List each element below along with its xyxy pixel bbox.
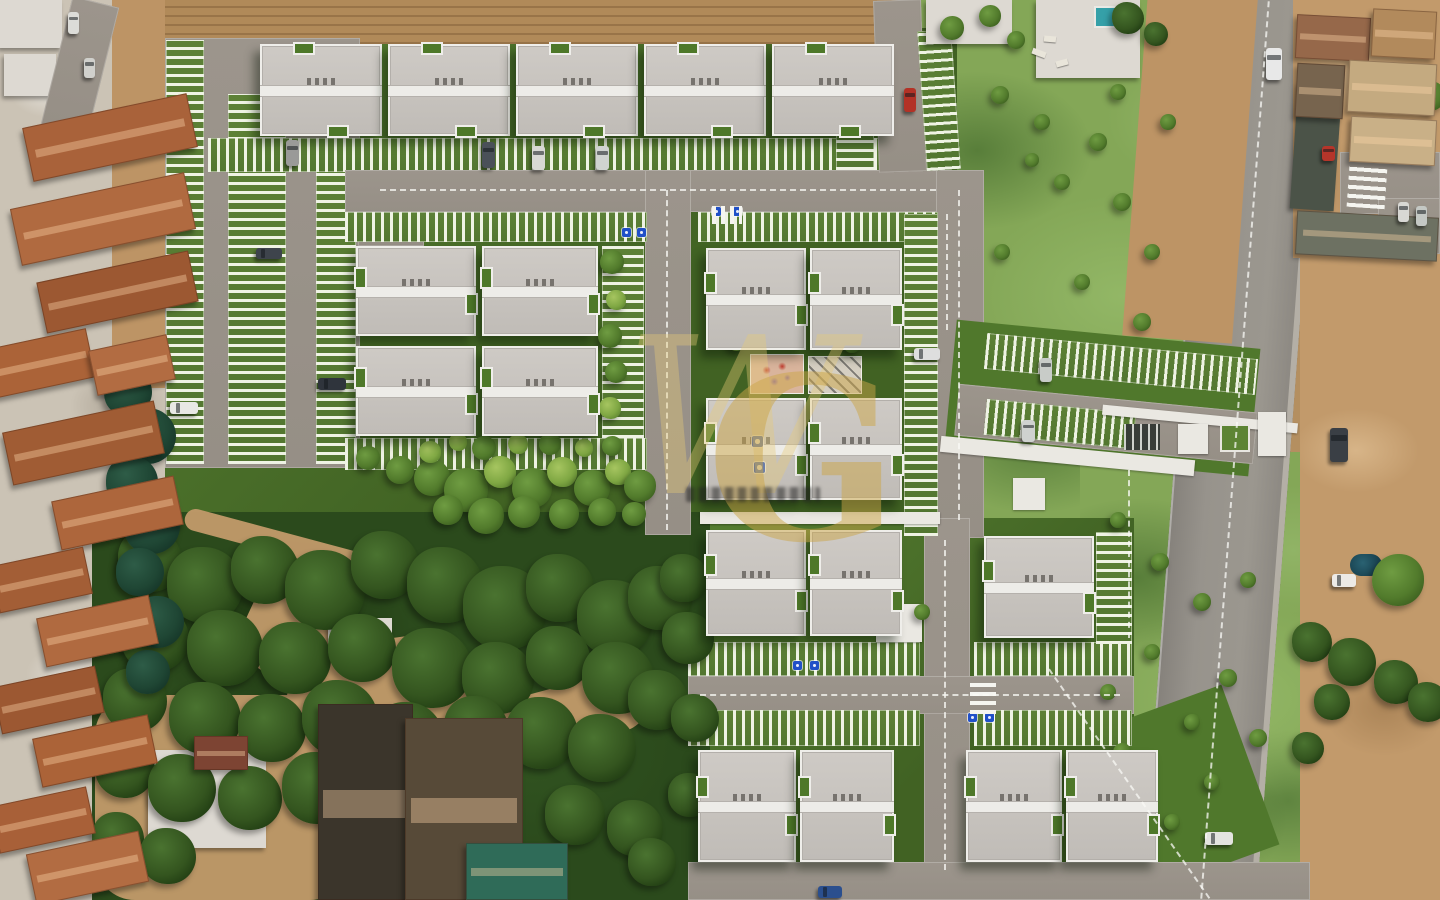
tree (1328, 638, 1376, 686)
apartment-building (706, 530, 806, 636)
tree (1184, 714, 1200, 730)
roof-ridge (411, 798, 518, 823)
striph-area (974, 642, 1132, 676)
tree (1240, 572, 1256, 588)
boundary-dash-line (700, 694, 1120, 696)
building-notch (587, 293, 600, 315)
building-notch (795, 454, 808, 476)
building-notch (293, 42, 315, 55)
roof-vents (742, 287, 770, 294)
roof-ridge (197, 751, 245, 755)
roof-vents (691, 78, 719, 85)
tree (484, 456, 516, 488)
crosswalk (970, 678, 996, 714)
building-notch (711, 125, 733, 138)
car (1330, 428, 1348, 462)
tree (1151, 553, 1169, 571)
building-notch (982, 560, 995, 582)
roof-vents (435, 78, 463, 85)
boundary-dash-line (380, 189, 936, 191)
tree (1204, 774, 1220, 790)
striph-area (208, 138, 906, 172)
tree (539, 433, 561, 455)
stripv-area (904, 214, 938, 536)
tree (1100, 684, 1116, 700)
boundary-dash-line (958, 190, 960, 520)
car (286, 140, 299, 166)
car-windshield (1417, 210, 1426, 213)
parking-sign-marking (752, 436, 763, 447)
roof-vents (842, 571, 870, 578)
parking-sign-marking (810, 661, 819, 670)
building-notch (795, 590, 808, 612)
roof-ridge (0, 351, 87, 376)
apartment-building (706, 398, 806, 500)
tree (545, 785, 605, 845)
car-windshield (261, 249, 265, 258)
apartment-building (966, 750, 1062, 862)
tree (1292, 732, 1324, 764)
car (1398, 202, 1409, 222)
striph-area (974, 710, 1132, 746)
tree (628, 838, 676, 886)
car (1332, 574, 1356, 587)
building-notch (465, 393, 478, 415)
building-notch (808, 422, 821, 444)
play-area (750, 354, 804, 394)
path-area (1178, 424, 1208, 454)
tree (1110, 84, 1126, 100)
fit-area (808, 356, 862, 394)
building-notch (480, 267, 493, 289)
boundary-dash-line (946, 214, 948, 330)
apartment-building (698, 750, 796, 862)
tree (547, 457, 577, 487)
tree (599, 397, 621, 419)
roof-vents (563, 78, 591, 85)
parking-sign-marking (754, 462, 765, 473)
tree (979, 5, 1001, 27)
car (256, 248, 282, 259)
tree (419, 441, 441, 463)
car-windshield (823, 887, 827, 897)
parking-sign-marking (637, 228, 646, 237)
building-notch (549, 42, 571, 55)
stripv-area (1096, 532, 1132, 644)
tree (660, 554, 708, 602)
terracotta-roof (1347, 60, 1438, 117)
tree (508, 434, 528, 454)
car (818, 886, 842, 898)
building-notch (696, 776, 709, 798)
crosswalk (1347, 165, 1388, 210)
roof-ridge (1300, 34, 1366, 43)
roof-ridge (2, 687, 96, 713)
tree (1219, 669, 1237, 687)
roof-vents (833, 794, 861, 801)
tree (1292, 622, 1332, 662)
roof-vents (526, 279, 554, 286)
tree (472, 436, 496, 460)
tree (218, 766, 282, 830)
striph-area (688, 710, 920, 746)
tree (1054, 174, 1070, 190)
car-windshield (1041, 363, 1051, 367)
pvd-area (1124, 424, 1160, 450)
car (1205, 832, 1233, 845)
tree (328, 614, 396, 682)
tree (1144, 22, 1168, 46)
building-notch (891, 454, 904, 476)
building-notch (1064, 776, 1077, 798)
roof-vents (402, 379, 430, 386)
terracotta-roof (1295, 63, 1346, 119)
tree (598, 324, 622, 348)
apartment-building (800, 750, 894, 862)
building-notch (421, 42, 443, 55)
tree (508, 496, 540, 528)
apartment-building (482, 346, 598, 436)
building-notch (839, 125, 861, 138)
boundary-dash-line (944, 540, 946, 870)
building-notch (808, 272, 821, 294)
tree (468, 498, 504, 534)
tree (994, 244, 1010, 260)
car-windshield (919, 349, 923, 359)
tree (622, 502, 646, 526)
building-notch (808, 554, 821, 576)
roof-vents (307, 78, 335, 85)
car-windshield (69, 17, 78, 21)
tree (606, 290, 626, 310)
striph-area (688, 642, 920, 676)
tree (1144, 644, 1160, 660)
tree (433, 495, 463, 525)
building-notch (587, 393, 600, 415)
roof-vents (1025, 575, 1053, 582)
apartment-building (356, 346, 476, 436)
car-windshield (1211, 833, 1215, 844)
car (532, 146, 545, 170)
car-windshield (597, 151, 608, 155)
crosswalk (712, 206, 742, 224)
tree (1110, 512, 1126, 528)
car (1040, 358, 1052, 382)
tree (1144, 244, 1160, 260)
car (68, 12, 79, 34)
tree (1025, 153, 1039, 167)
tree (1133, 313, 1151, 331)
tree (392, 628, 472, 708)
car-windshield (1399, 206, 1408, 209)
car-windshield (1337, 575, 1341, 586)
roof-ridge (96, 355, 167, 376)
aerial-site-plan: W G (0, 0, 1440, 900)
roof-ridge (1354, 136, 1431, 146)
building-notch (354, 267, 367, 289)
car-windshield (287, 146, 298, 150)
striph-area (345, 212, 647, 242)
building-notch (891, 304, 904, 326)
building-notch (883, 814, 896, 836)
tree (568, 714, 636, 782)
tree (1164, 814, 1180, 830)
roof-vents (842, 287, 870, 294)
tree (1193, 593, 1211, 611)
apartment-building (356, 246, 476, 336)
tree (1249, 729, 1267, 747)
tree (1074, 274, 1090, 290)
roof-vents (402, 279, 430, 286)
terracotta-roof (1371, 8, 1437, 59)
tree (940, 16, 964, 40)
apartment-building (516, 44, 638, 136)
tree (602, 436, 622, 456)
car (1022, 420, 1035, 442)
roof-ridge (35, 119, 186, 158)
tree (671, 694, 719, 742)
building-notch (704, 554, 717, 576)
building-notch (465, 293, 478, 315)
roof-ridge (323, 790, 409, 817)
apartment-building (772, 44, 894, 136)
tree (140, 828, 196, 884)
tree (914, 604, 930, 620)
path-area (700, 512, 940, 524)
building-notch (798, 776, 811, 798)
tree (526, 626, 590, 690)
building-notch (891, 590, 904, 612)
building-notch (1083, 592, 1096, 614)
roof-ridge (46, 617, 149, 645)
apartment-building (388, 44, 510, 136)
road-area (688, 862, 1310, 900)
tree (238, 694, 306, 762)
building-notch (455, 125, 477, 138)
apartment-building (810, 248, 902, 350)
building-notch (677, 42, 699, 55)
roof-ridge (1299, 87, 1342, 96)
roof-ridge (1303, 230, 1432, 243)
tree (116, 548, 164, 596)
apartment-building (984, 536, 1094, 638)
building-notch (354, 367, 367, 389)
parking-sign-marking (622, 228, 631, 237)
car (84, 58, 95, 78)
tree (126, 650, 170, 694)
tree (1408, 682, 1440, 722)
roof-vents (733, 794, 761, 801)
tree (356, 446, 380, 470)
car-windshield (85, 62, 94, 65)
car (914, 348, 940, 360)
roof-ridge (36, 854, 139, 882)
building-notch (964, 776, 977, 798)
boundary-dash-line (666, 190, 668, 530)
car-windshield (1023, 425, 1034, 429)
parking-sign-marking (985, 713, 994, 722)
tree (1089, 133, 1107, 151)
car-windshield (324, 379, 328, 389)
car (1322, 146, 1335, 161)
building-notch (785, 814, 798, 836)
car-windshield (1267, 55, 1281, 60)
boundary-dash-line (1128, 470, 1130, 638)
parking-sign-marking (793, 661, 802, 670)
roof-vents (842, 437, 870, 444)
car (318, 378, 346, 390)
tree (1314, 684, 1350, 720)
terracotta-roof (466, 843, 568, 900)
terracotta-roof (194, 736, 248, 770)
roof-ridge (0, 808, 87, 833)
building-notch (1051, 814, 1064, 836)
building-notch (805, 42, 827, 55)
roof-ridge (0, 568, 84, 592)
tree (605, 361, 627, 383)
building-notch (327, 125, 349, 138)
building-notch (704, 422, 717, 444)
roof-vents (819, 78, 847, 85)
tree (187, 610, 263, 686)
roof-ridge (14, 425, 153, 461)
roof-ridge (471, 868, 563, 876)
apartment-building (260, 44, 382, 136)
roof-ridge (48, 274, 187, 310)
terracotta-roof (1295, 14, 1371, 62)
car (482, 142, 495, 168)
tree (1034, 114, 1050, 130)
car-windshield (1331, 435, 1347, 440)
tree (1112, 2, 1144, 34)
car-windshield (1323, 149, 1334, 151)
tree (386, 456, 414, 484)
roof-vents (1098, 794, 1126, 801)
apartment-building (706, 248, 806, 350)
building-notch (583, 125, 605, 138)
bench-area (1044, 35, 1056, 42)
building-notch (704, 272, 717, 294)
apartment-building (482, 246, 598, 336)
terracotta-roof (318, 704, 413, 900)
roof-vents (742, 571, 770, 578)
roof-vents (526, 379, 554, 386)
car (170, 402, 198, 414)
roof-ridge (23, 199, 183, 240)
tree (575, 439, 593, 457)
car (596, 146, 609, 170)
apartment-building (810, 398, 902, 500)
car (1266, 48, 1282, 80)
tree (624, 470, 656, 502)
tree (991, 86, 1009, 104)
tree (1160, 114, 1176, 130)
blt-area (0, 0, 62, 48)
tree (600, 250, 624, 274)
apartment-building (644, 44, 766, 136)
parking-sign-marking (968, 713, 977, 722)
car-windshield (483, 148, 494, 152)
roof-ridge (42, 737, 148, 766)
roof-ridge (62, 498, 174, 528)
car (904, 88, 916, 112)
path-area (1258, 412, 1286, 456)
path-area (1013, 478, 1045, 510)
terracotta-roof (1349, 116, 1437, 166)
roof-vents (1000, 794, 1028, 801)
tree (1372, 554, 1424, 606)
apartment-building (810, 530, 902, 636)
car-windshield (905, 93, 915, 97)
building-notch (795, 304, 808, 326)
tree (549, 499, 579, 529)
tree (1113, 193, 1131, 211)
roof-ridge (1352, 83, 1431, 94)
car-windshield (533, 151, 544, 155)
tree (1007, 31, 1025, 49)
car (1416, 206, 1427, 226)
building-notch (480, 367, 493, 389)
tree (588, 498, 616, 526)
roof-ridge (1375, 30, 1432, 39)
car-windshield (176, 403, 180, 413)
